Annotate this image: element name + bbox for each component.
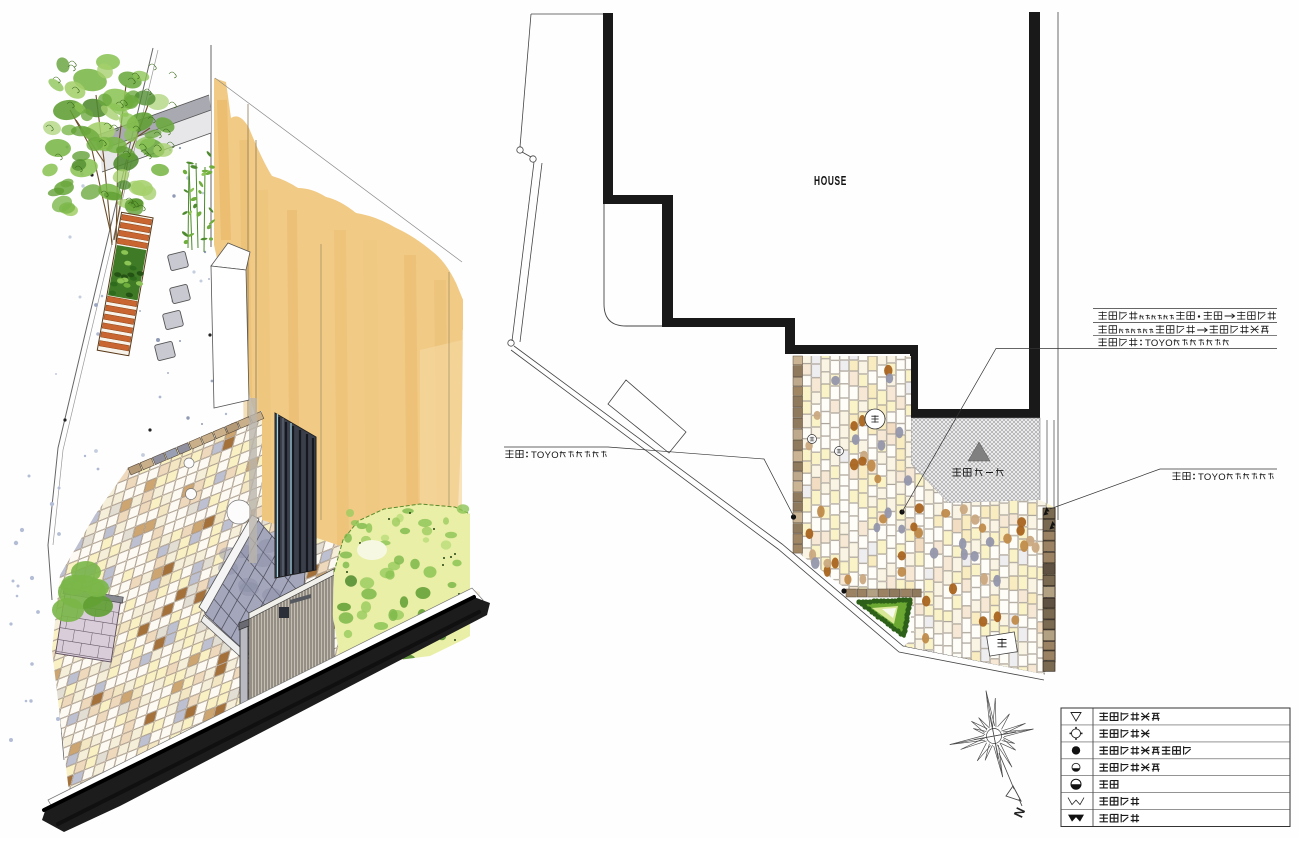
svg-text:TOYO: TOYO	[1145, 338, 1173, 349]
svg-text:TOYO: TOYO	[1198, 472, 1226, 483]
svg-text:HOUSE: HOUSE	[814, 174, 847, 188]
svg-text:TOYO: TOYO	[531, 450, 559, 461]
